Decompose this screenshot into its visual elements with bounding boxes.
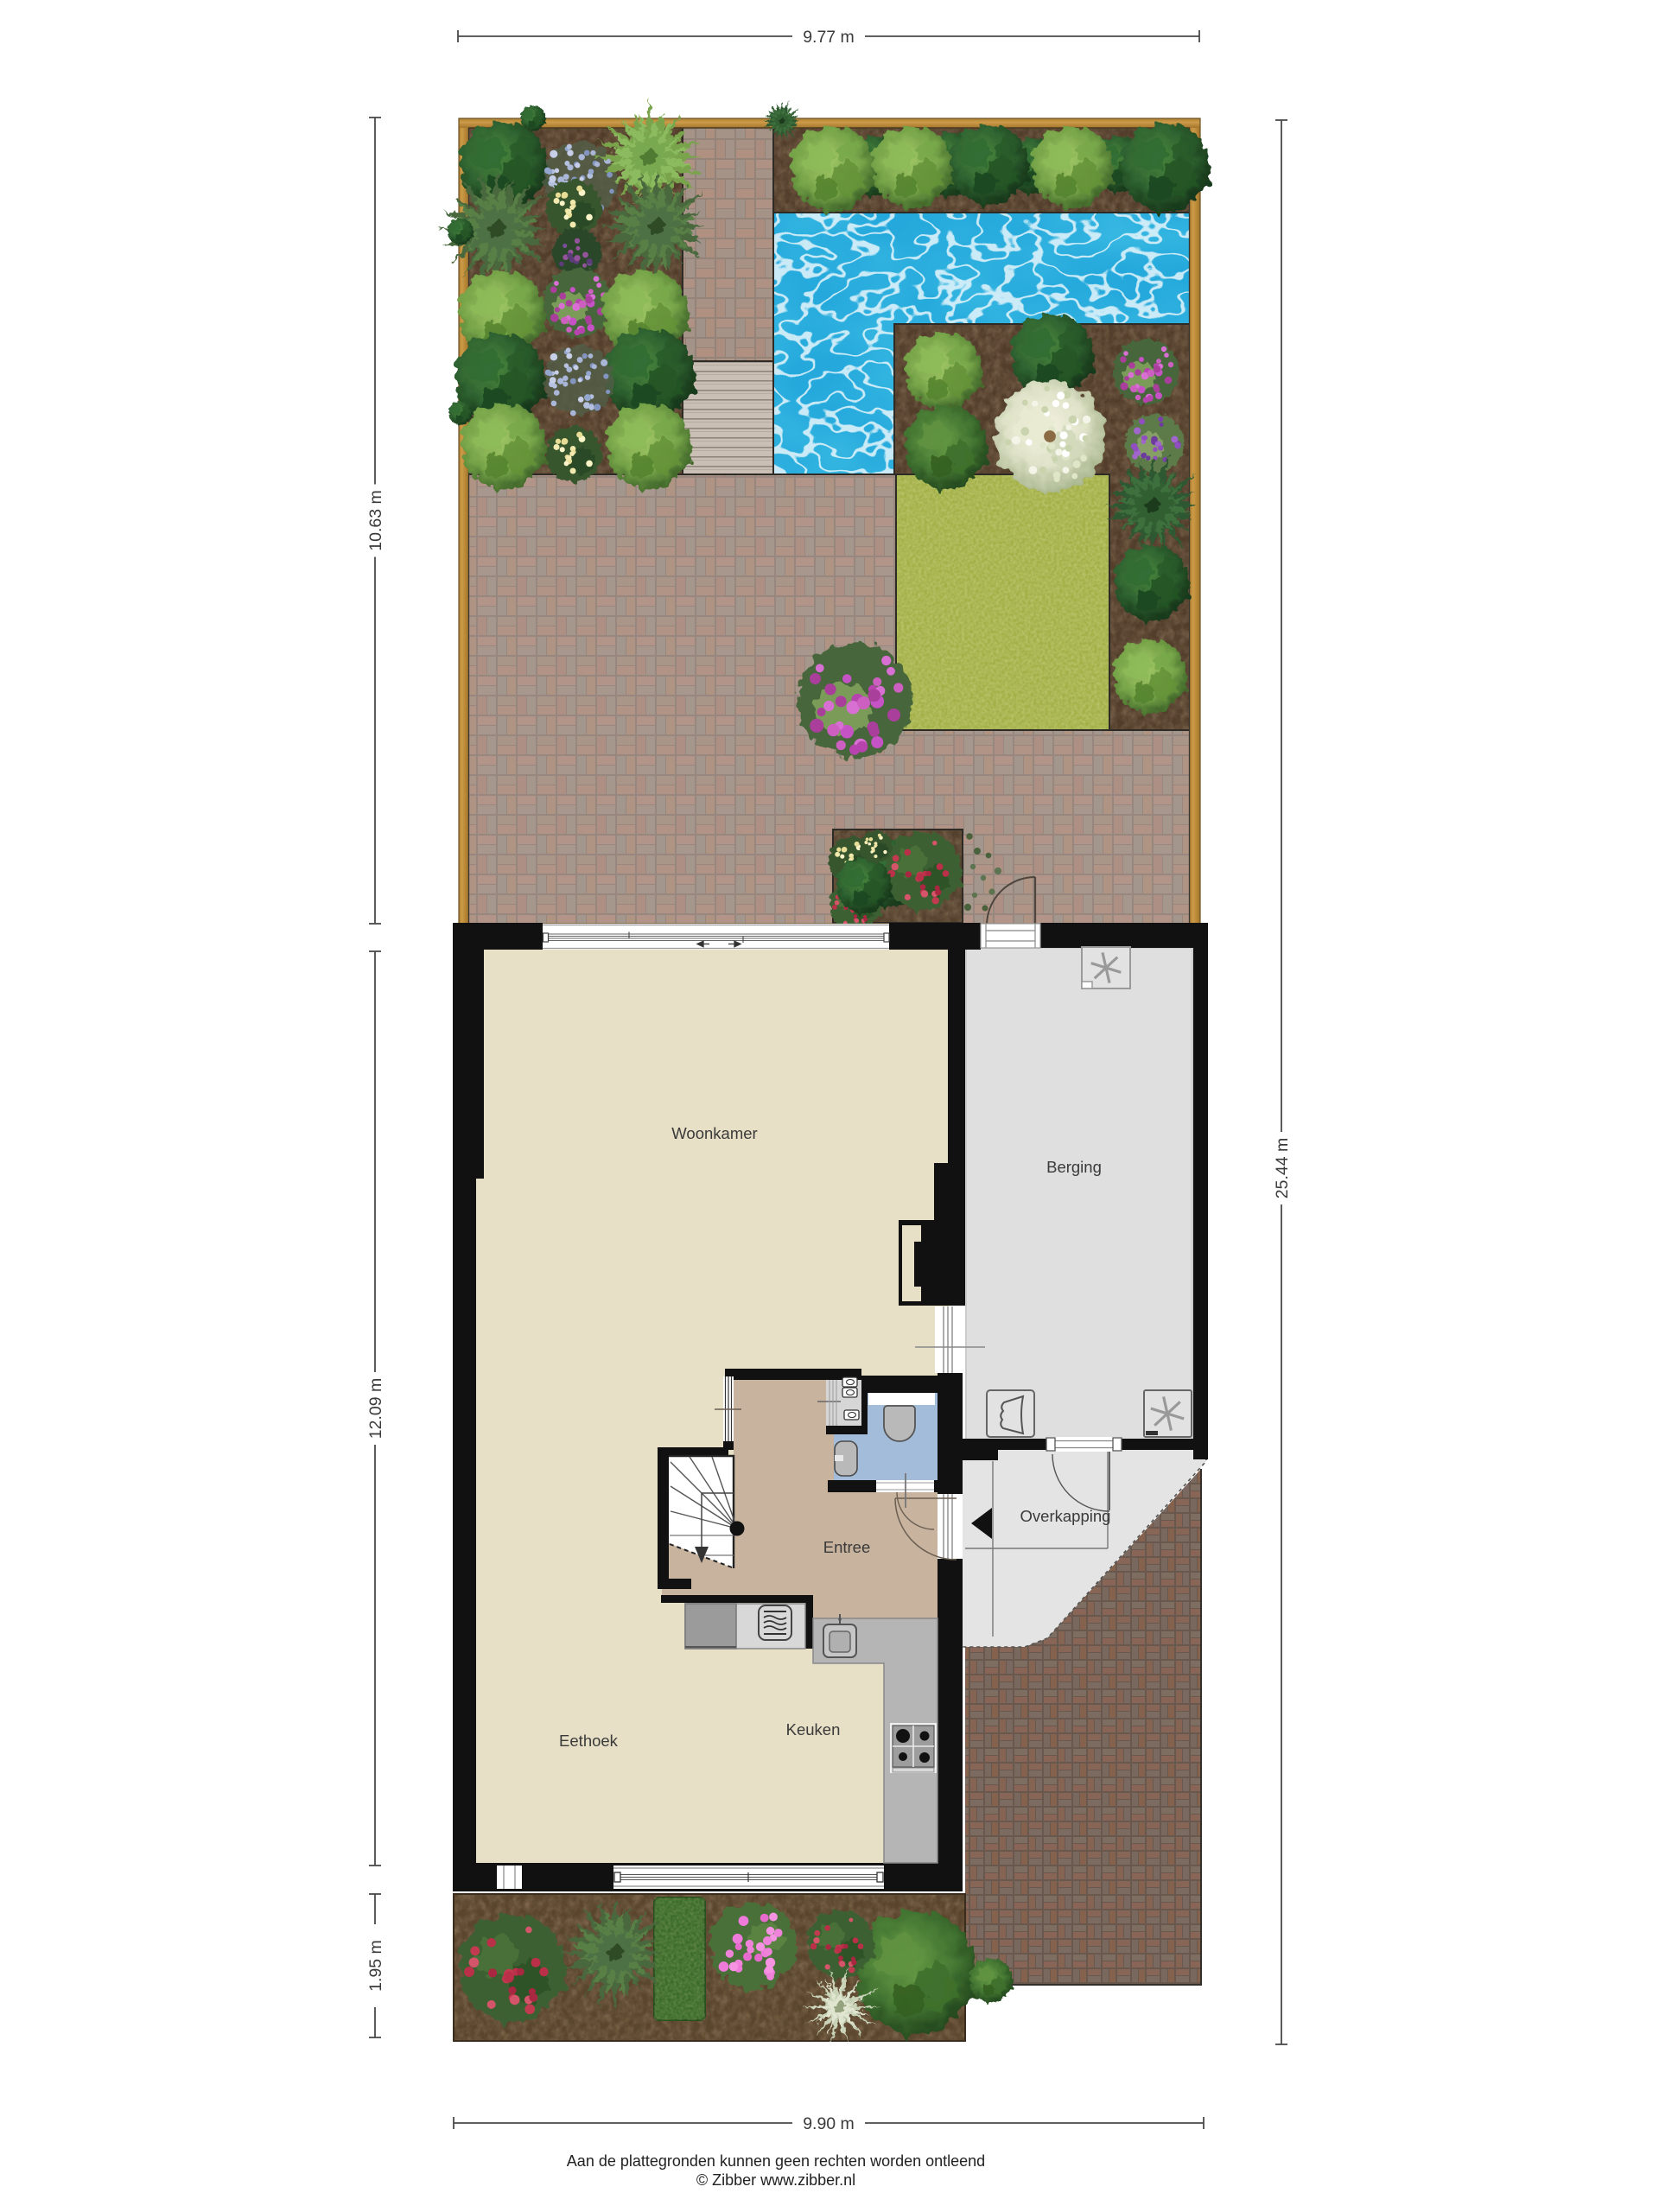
svg-text:Aan de plattegronden kunnen ge: Aan de plattegronden kunnen geen rechten… [567,2152,985,2170]
svg-text:Keuken: Keuken [786,1720,841,1738]
svg-text:9.90 m: 9.90 m [803,2114,855,2133]
svg-text:Overkapping: Overkapping [1020,1507,1111,1525]
svg-text:10.63 m: 10.63 m [366,490,385,550]
svg-text:Entree: Entree [823,1538,871,1556]
svg-text:25.44 m: 25.44 m [1273,1138,1292,1198]
svg-text:9.77 m: 9.77 m [803,28,855,47]
svg-text:Eethoek: Eethoek [559,1732,619,1750]
svg-text:1.95 m: 1.95 m [366,1940,385,1992]
svg-text:Berging: Berging [1046,1158,1102,1176]
svg-text:12.09 m: 12.09 m [366,1378,385,1439]
svg-text:© Zibber www.zibber.nl: © Zibber www.zibber.nl [696,2171,855,2189]
svg-text:Woonkamer: Woonkamer [671,1124,757,1142]
